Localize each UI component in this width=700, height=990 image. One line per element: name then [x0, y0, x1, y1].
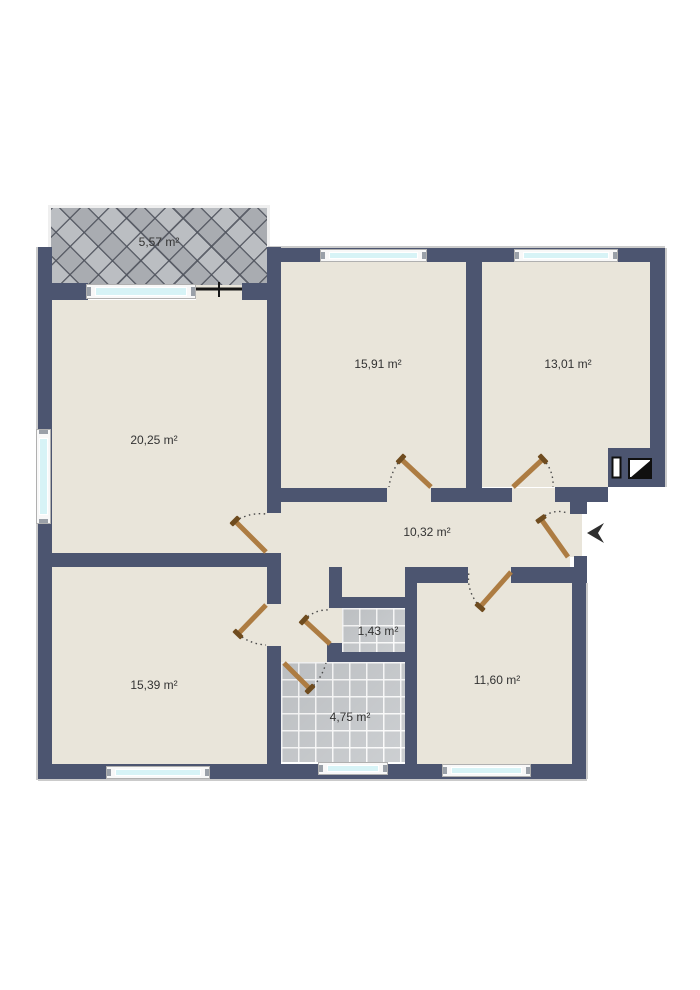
door-leaf-bottom-right [480, 572, 511, 607]
room-bottom-left-area-label: 15,39 m² [130, 678, 177, 692]
room-top-middle-area-label: 15,91 m² [354, 357, 401, 371]
balcony-area-label: 5,57 m² [139, 235, 180, 249]
door-leaf-bathroom [284, 663, 310, 689]
shaft-symbol-narrow-icon [613, 458, 621, 478]
door-arc-bathroom [310, 663, 326, 689]
floor-plan: 5,57 m² 20,25 m² 15,91 m² 13,01 m² 10,32… [0, 0, 700, 990]
room-bottom-right-area-label: 11,60 m² [474, 673, 520, 687]
door-leaf-wc [304, 620, 330, 644]
door-leaf-entrance [541, 519, 568, 557]
door-arc-bottom-right [468, 572, 480, 607]
door-leaf-bottom-left [238, 605, 266, 634]
door-leaf-top-right [513, 459, 543, 487]
door-leaf-top-middle [401, 459, 431, 487]
hallway-area-label: 10,32 m² [403, 525, 450, 539]
shaft-symbols [613, 458, 652, 479]
door-arc-wc [304, 610, 330, 620]
door-arc-entrance [541, 511, 567, 519]
bathroom-area-label: 4,75 m² [330, 710, 371, 724]
door-arc-top-middle [389, 459, 401, 487]
door-leaves [235, 459, 568, 689]
wc-area-label: 1,43 m² [358, 624, 399, 638]
door-arc-left-room [235, 514, 266, 521]
door-arc-bottom-left [238, 634, 266, 645]
room-top-right-area-label: 13,01 m² [544, 357, 591, 371]
balcony-door [196, 282, 242, 297]
door-arc-top-right [543, 459, 553, 487]
room-left-large-area-label: 20,25 m² [130, 433, 177, 447]
entrance-arrow-icon [587, 523, 604, 543]
door-arcs [235, 459, 567, 689]
doors-overlay [0, 0, 700, 990]
door-leaf-left-room [235, 521, 266, 552]
